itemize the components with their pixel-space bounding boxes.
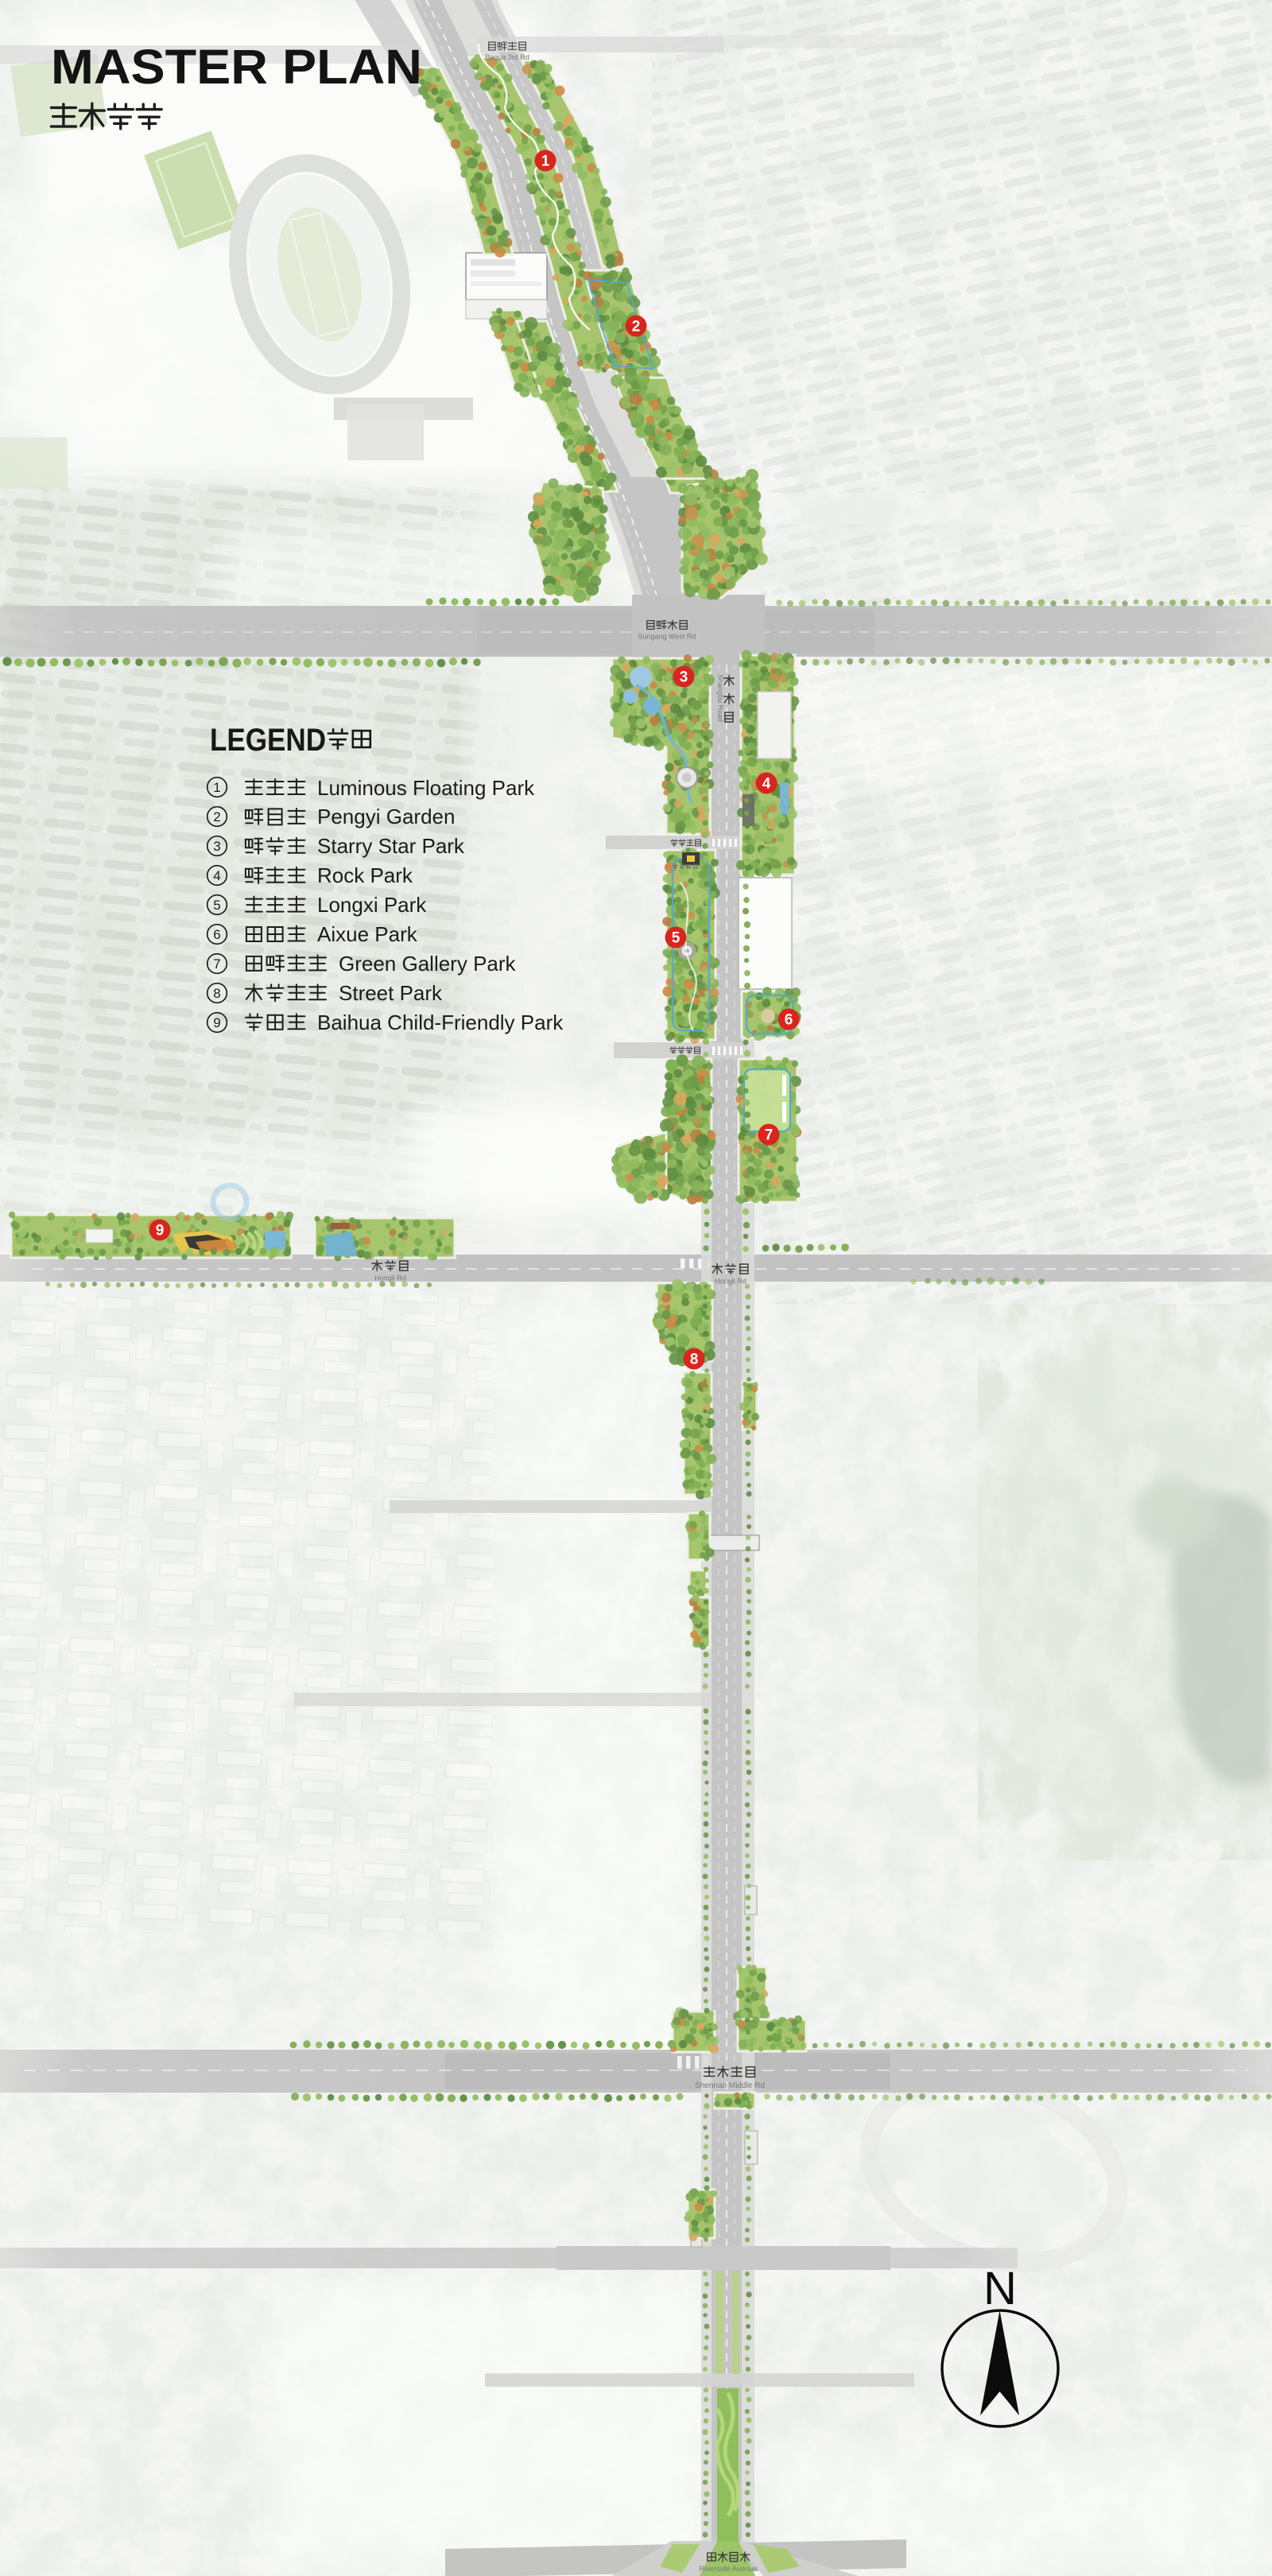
svg-text:Hongli Rd: Hongli Rd (715, 1277, 747, 1285)
svg-text:LEGEND: LEGEND (210, 723, 326, 758)
svg-text:Street Park: Street Park (339, 981, 443, 1005)
svg-text:3: 3 (680, 669, 688, 686)
svg-text:9: 9 (156, 1223, 165, 1240)
svg-text:5: 5 (213, 898, 220, 913)
svg-text:9: 9 (213, 1015, 220, 1030)
svg-text:7: 7 (213, 956, 220, 972)
svg-text:Longxi Park: Longxi Park (317, 893, 427, 917)
svg-text:Hongli Rd: Hongli Rd (374, 1274, 406, 1282)
svg-text:1: 1 (213, 780, 220, 795)
svg-text:Luminous Floating Park: Luminous Floating Park (317, 776, 535, 800)
svg-text:Sungang West Rd: Sungang West Rd (638, 632, 696, 640)
svg-text:Pengyi Garden: Pengyi Garden (317, 805, 455, 828)
svg-text:N: N (983, 2263, 1017, 2314)
svg-text:1: 1 (541, 153, 550, 170)
svg-text:Shennan Middle Rd: Shennan Middle Rd (695, 2081, 765, 2090)
svg-text:Rock Park: Rock Park (317, 863, 413, 887)
svg-text:8: 8 (690, 1352, 699, 1368)
svg-text:Riverside Avenue: Riverside Avenue (699, 2565, 758, 2574)
svg-text:Aixue Park: Aixue Park (317, 922, 418, 946)
svg-text:Baihua Child-Friendly Park: Baihua Child-Friendly Park (317, 1011, 564, 1034)
svg-text:MASTER PLAN: MASTER PLAN (51, 40, 422, 94)
svg-text:2: 2 (632, 319, 641, 336)
svg-text:3: 3 (213, 839, 220, 854)
svg-text:Green Gallery Park: Green Gallery Park (339, 952, 517, 976)
svg-text:Shangbu Road: Shangbu Road (716, 674, 724, 722)
svg-text:Starry Star Park: Starry Star Park (317, 834, 465, 858)
svg-text:2: 2 (213, 809, 220, 824)
svg-text:5: 5 (672, 930, 681, 947)
svg-text:7: 7 (765, 1127, 774, 1144)
svg-text:4: 4 (213, 868, 220, 883)
svg-text:6: 6 (785, 1012, 793, 1029)
svg-text:8: 8 (213, 986, 220, 1001)
svg-text:6: 6 (213, 927, 220, 942)
svg-text:Bagua 3rd Rd: Bagua 3rd Rd (485, 53, 529, 61)
svg-text:4: 4 (762, 776, 771, 793)
